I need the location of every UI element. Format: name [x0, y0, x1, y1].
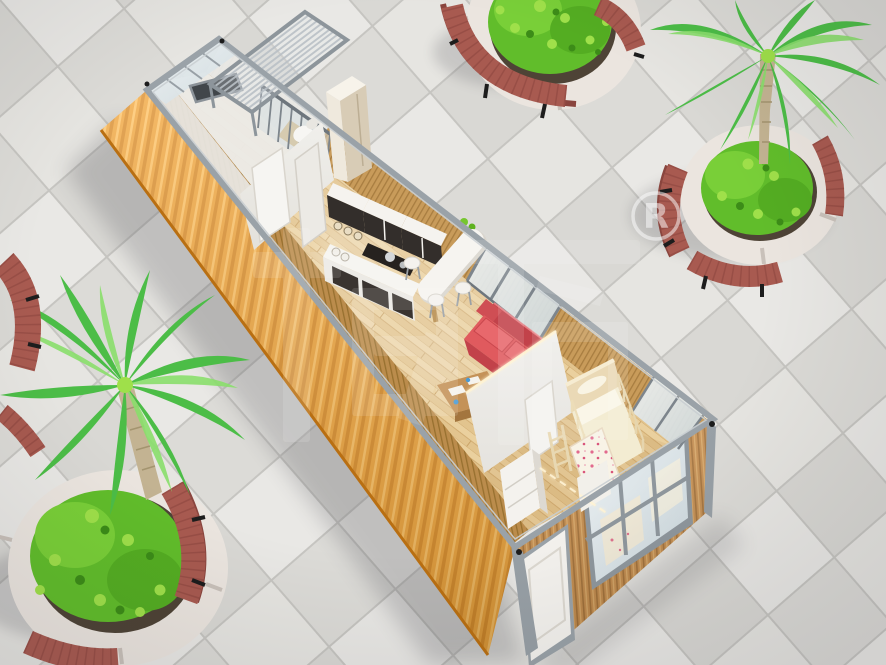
vignette — [0, 0, 886, 665]
scene-render: 柜族 R — [0, 0, 886, 665]
render-stage: 柜族 R — [0, 0, 886, 665]
